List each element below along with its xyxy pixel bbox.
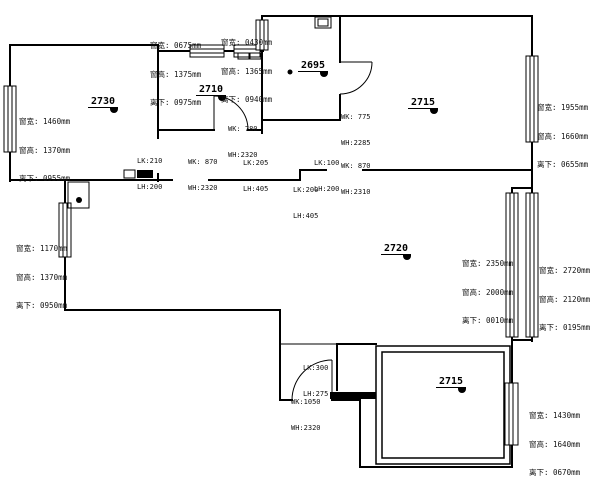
note-line: 窗宽: 2720mm (539, 266, 590, 276)
elevation-marker-icon (403, 255, 411, 260)
note-line: WK: 870 (188, 158, 218, 167)
room-label-text: 2695 (298, 60, 328, 72)
room-label-2695: 2695 (298, 60, 328, 77)
note-line: 窗宽: 1955mm (537, 103, 588, 113)
note-line: 窗高: 1370mm (19, 146, 70, 156)
beam-note-d: LK:200 LH:405 (293, 169, 318, 237)
window-2730-left (4, 86, 16, 152)
note-line: 窗高: 1365mm (221, 67, 272, 77)
door-note-hall-left: WK: 870 WH:2320 (188, 141, 218, 209)
note-line: LH:275 (303, 390, 328, 399)
window-bay-outer (526, 193, 538, 337)
note-line: WH:2320 (188, 184, 218, 193)
note-line: 窗高: 1640mm (529, 440, 580, 450)
note-line: WH:2320 (291, 424, 321, 433)
note-line: 离下: 0670mm (529, 468, 580, 478)
note-line: 离下: 0195mm (539, 323, 590, 333)
window-note-right-a: 窗宽: 1955mm 窗高: 1660mm 离下: 0655mm (537, 84, 588, 189)
door-note-hall-right: WK: 870 WH:2310 (341, 145, 371, 213)
note-line: 离下: 0010mm (462, 316, 513, 326)
room-label-2715-top: 2715 (408, 97, 438, 114)
note-line: 离下: 0950mm (16, 301, 67, 311)
room-label-2715-bottom: 2715 (436, 376, 466, 393)
window-note-left-b: 窗宽: 1170mm 窗高: 1370mm 离下: 0950mm (16, 225, 67, 330)
elevation-marker-icon (110, 108, 118, 113)
note-line: LH:405 (293, 212, 318, 221)
marker-dot-2695 (288, 70, 293, 75)
note-line: LK:210 (137, 157, 162, 166)
elevation-marker-icon (458, 388, 466, 393)
note-line: 窗宽: 1430mm (529, 411, 580, 421)
note-line: LK:200 (293, 186, 318, 195)
window-note-left-a: 窗宽: 1460mm 窗高: 1370mm 离下: 0955mm (19, 98, 70, 203)
note-line: LH:200 (137, 183, 162, 192)
note-line: 离下: 0955mm (19, 174, 70, 184)
elevation-marker-icon (320, 72, 328, 77)
room-bottom-right-walls (376, 346, 510, 464)
room-label-text: 2715 (408, 97, 438, 109)
floorplan-canvas: 2730 2710 2695 2715 2720 2715 窗宽: 0675mm… (0, 0, 600, 479)
beam-note-e: LK:300 LH:275 (303, 347, 328, 415)
note-line: 窗宽: 1460mm (19, 117, 70, 127)
note-line: WK: 870 (341, 162, 371, 171)
note-line: 离下: 0940mm (221, 95, 272, 105)
note-line: LH:405 (243, 185, 268, 194)
note-line: LK:300 (303, 364, 328, 373)
window-note-bottom-right: 窗宽: 1430mm 窗高: 1640mm 离下: 0670mm (529, 392, 580, 479)
note-line: LK:205 (243, 159, 268, 168)
note-line: 离下: 0975mm (150, 98, 201, 108)
beam-note-b: LK:205 LH:405 (243, 142, 268, 210)
note-line: 窗高: 2120mm (539, 295, 590, 305)
note-line: LK:100 (314, 159, 339, 168)
note-line: 窗宽: 2350mm (462, 259, 513, 269)
lintel-bar (330, 392, 376, 399)
window-note-right-b: 窗宽: 2350mm 窗高: 2000mm 离下: 0010mm (462, 240, 513, 345)
flue-symbol (315, 17, 331, 28)
note-line: WH:2310 (341, 188, 371, 197)
note-line: 窗高: 2000mm (462, 288, 513, 298)
window-note-top-a: 窗宽: 0675mm 窗高: 1375mm 离下: 0975mm (150, 22, 201, 127)
note-line: 窗高: 1370mm (16, 273, 67, 283)
note-line: WK: 780 (228, 125, 258, 134)
note-line: 窗宽: 1170mm (16, 244, 67, 254)
window-bottom-right (505, 383, 518, 445)
elevation-marker-icon (430, 109, 438, 114)
room-label-text: 2730 (88, 96, 118, 108)
window-note-right-c: 窗宽: 2720mm 窗高: 2120mm 离下: 0195mm (539, 247, 590, 352)
room-label-text: 2720 (381, 243, 411, 255)
note-line: 窗高: 1375mm (150, 70, 201, 80)
note-line: 窗高: 1660mm (537, 132, 588, 142)
room-label-2720: 2720 (381, 243, 411, 260)
note-line: 窗宽: 0430mm (221, 38, 272, 48)
note-line: 离下: 0655mm (537, 160, 588, 170)
beam-note-a: LK:210 LH:200 (137, 140, 162, 208)
door-2695 (340, 62, 372, 94)
note-line: WK: 775 (341, 113, 371, 122)
room-label-text: 2715 (436, 376, 466, 388)
room-label-2730: 2730 (88, 96, 118, 113)
note-line: 窗宽: 0675mm (150, 41, 201, 51)
